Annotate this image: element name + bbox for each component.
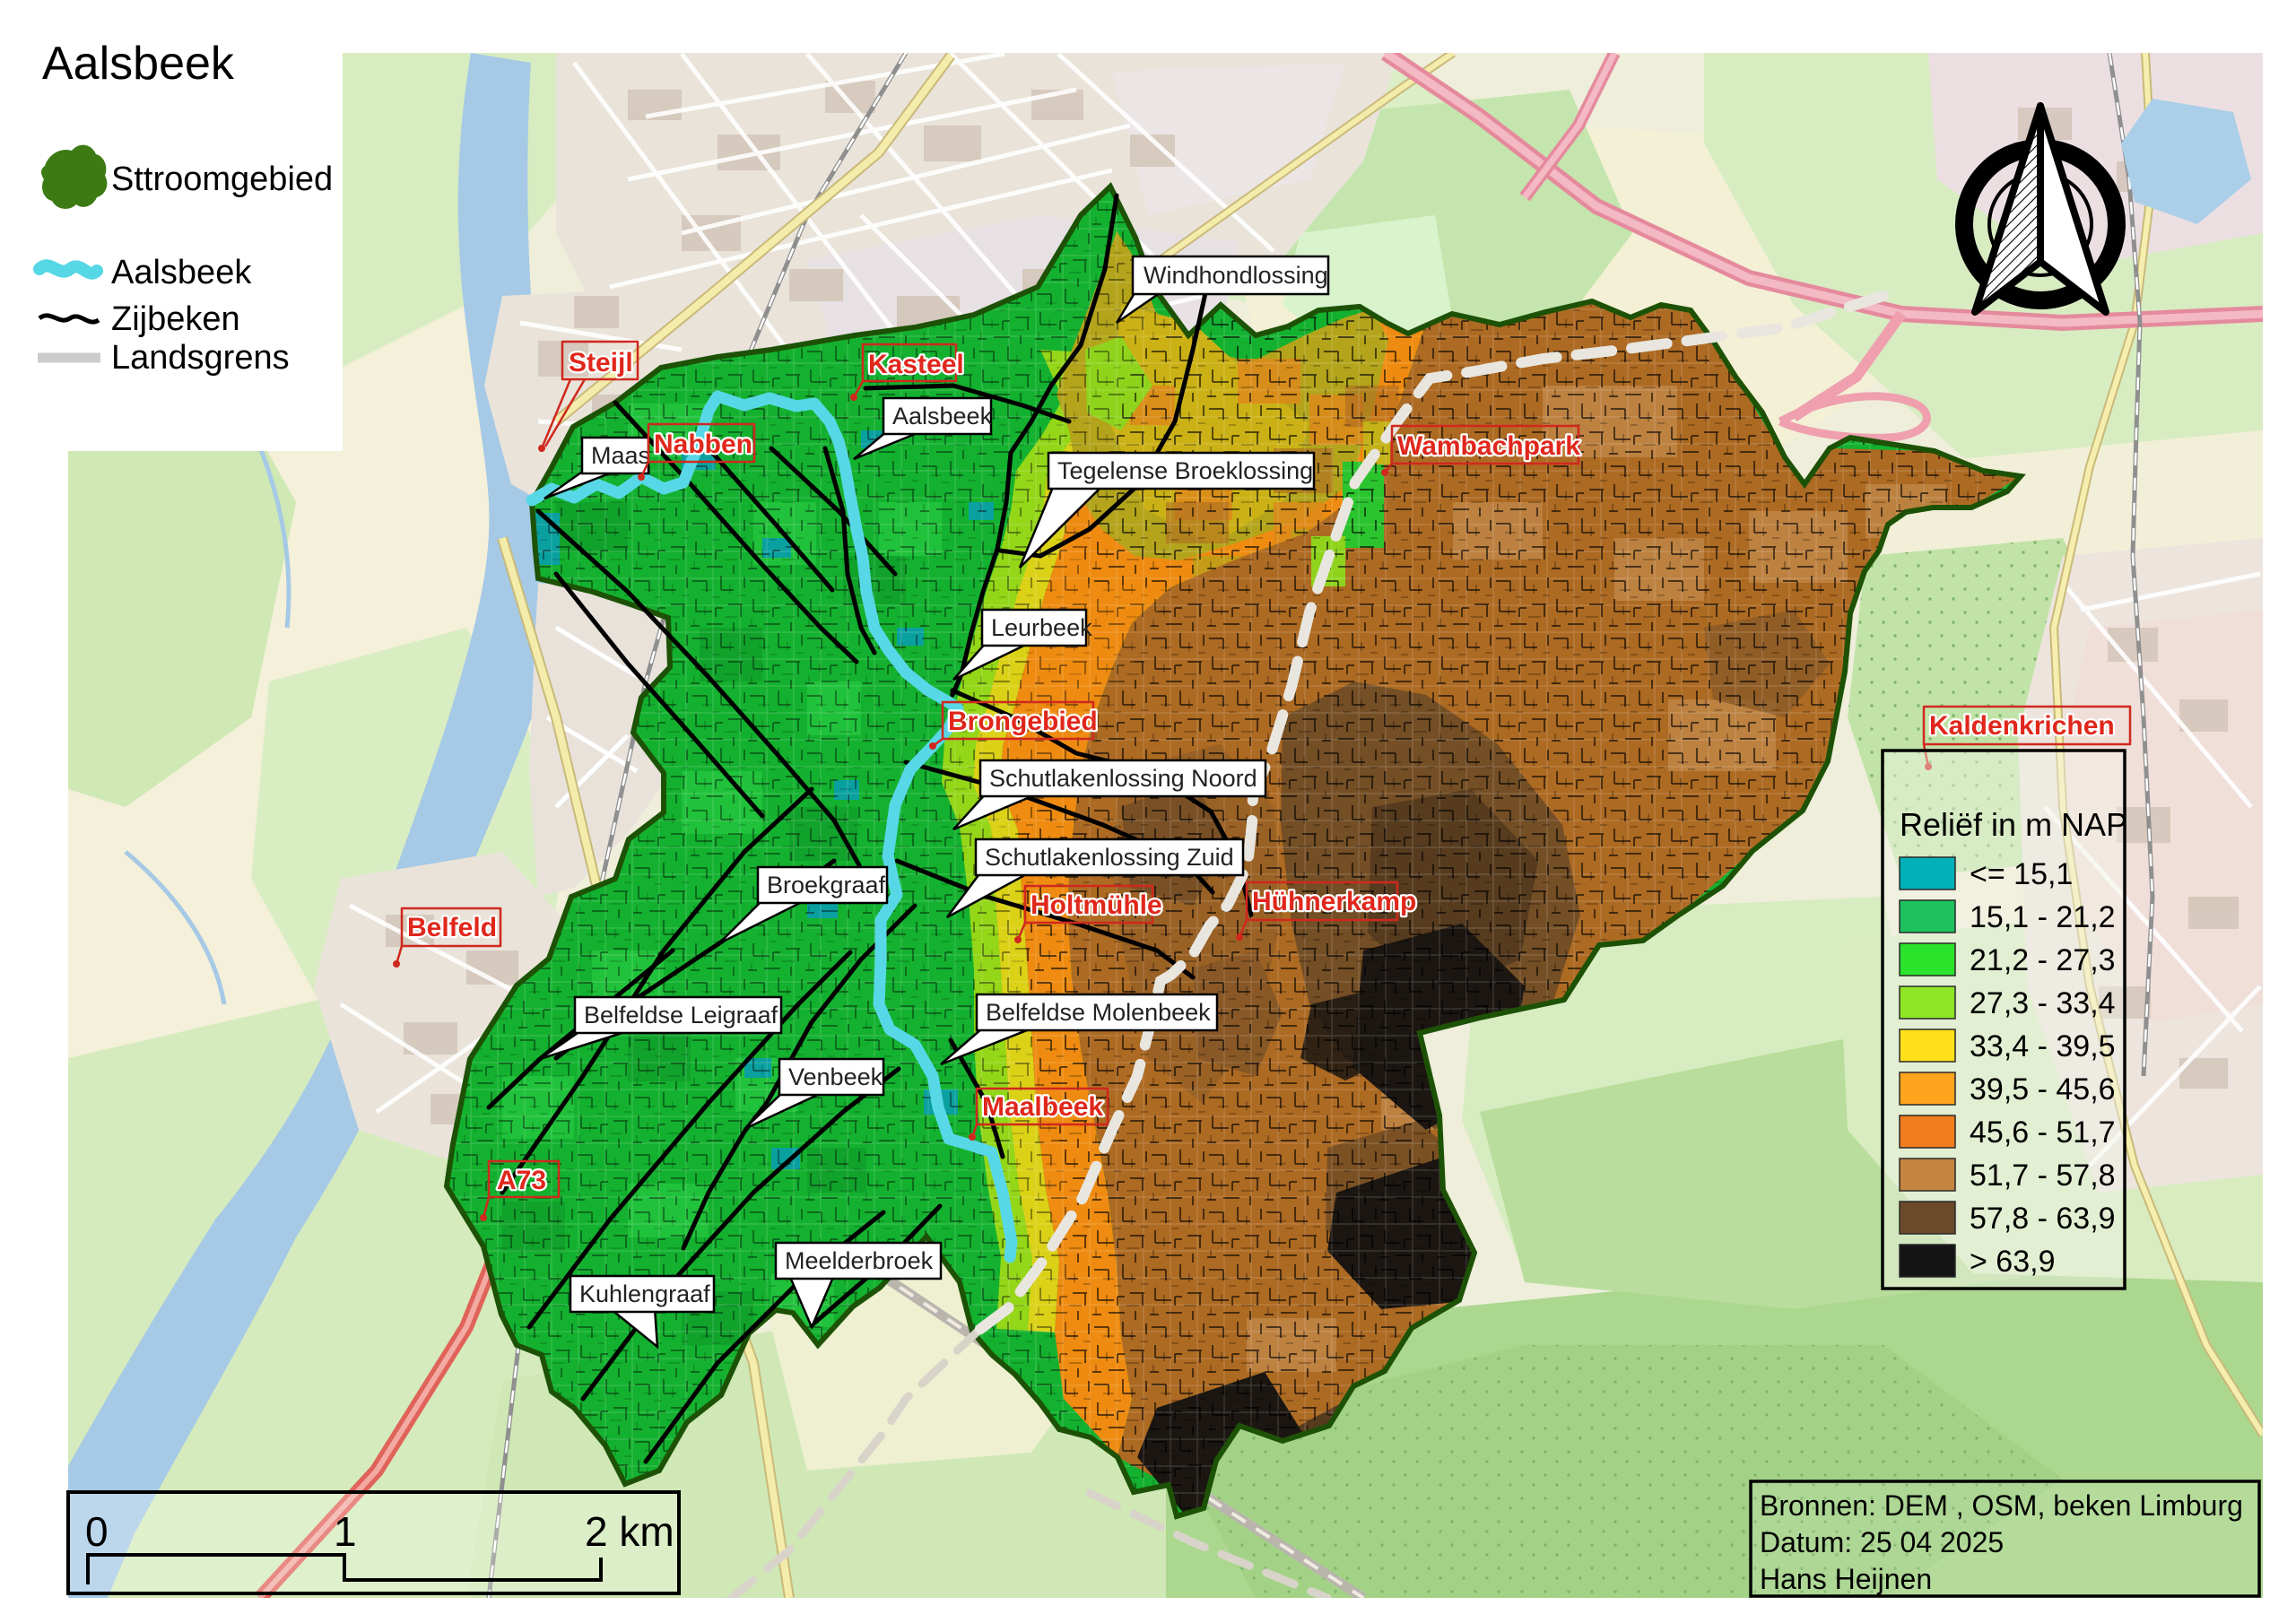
svg-text:Kaldenkrichen: Kaldenkrichen bbox=[1929, 711, 2115, 741]
svg-text:15,1 - 21,2: 15,1 - 21,2 bbox=[1970, 900, 2116, 934]
svg-text:Reliëf in m NAP: Reliëf in m NAP bbox=[1900, 806, 2127, 843]
svg-text:27,3 - 33,4: 27,3 - 33,4 bbox=[1970, 986, 2116, 1020]
svg-text:> 63,9: > 63,9 bbox=[1970, 1245, 2055, 1279]
svg-text:Landsgrens: Landsgrens bbox=[111, 339, 290, 377]
svg-text:51,7 - 57,8: 51,7 - 57,8 bbox=[1970, 1159, 2116, 1193]
svg-text:Meelderbroek: Meelderbroek bbox=[785, 1247, 934, 1274]
svg-text:Broekgraaf: Broekgraaf bbox=[767, 872, 886, 898]
svg-text:Schutlakenlossing Noord: Schutlakenlossing Noord bbox=[989, 765, 1257, 792]
svg-text:1: 1 bbox=[334, 1508, 357, 1555]
svg-text:Wambachpark: Wambachpark bbox=[1397, 431, 1580, 461]
svg-text:Aalsbeek: Aalsbeek bbox=[892, 403, 993, 430]
svg-text:21,2 - 27,3: 21,2 - 27,3 bbox=[1970, 943, 2116, 977]
svg-text:Nabben: Nabben bbox=[654, 430, 752, 459]
svg-text:Hühnerkamp: Hühnerkamp bbox=[1252, 887, 1416, 916]
svg-text:Bronnen: DEM , OSM, beken Limb: Bronnen: DEM , OSM, beken Limburg bbox=[1760, 1489, 2243, 1522]
svg-text:Schutlakenlossing Zuid: Schutlakenlossing Zuid bbox=[985, 844, 1234, 871]
svg-text:57,8 - 63,9: 57,8 - 63,9 bbox=[1970, 1202, 2116, 1236]
svg-text:Venbeek: Venbeek bbox=[788, 1063, 883, 1090]
svg-text:Windhondlossing: Windhondlossing bbox=[1144, 262, 1328, 289]
svg-text:Aalsbeek: Aalsbeek bbox=[111, 254, 252, 291]
svg-text:Tegelense Broeklossing: Tegelense Broeklossing bbox=[1057, 457, 1313, 484]
svg-text:Zijbeken: Zijbeken bbox=[111, 300, 240, 338]
svg-text:Maalbeek: Maalbeek bbox=[982, 1092, 1103, 1122]
svg-text:A73: A73 bbox=[497, 1166, 546, 1195]
svg-text:<= 15,1: <= 15,1 bbox=[1970, 857, 2073, 891]
svg-text:45,6 - 51,7: 45,6 - 51,7 bbox=[1970, 1115, 2116, 1150]
svg-text:Steijl: Steijl bbox=[569, 348, 633, 378]
svg-text:Leurbeek: Leurbeek bbox=[991, 614, 1092, 641]
svg-text:Belfeld: Belfeld bbox=[407, 913, 497, 942]
svg-text:39,5 - 45,6: 39,5 - 45,6 bbox=[1970, 1072, 2116, 1107]
svg-text:Maas: Maas bbox=[591, 442, 650, 469]
svg-text:Brongebied: Brongebied bbox=[948, 707, 1098, 736]
svg-text:Datum: 25 04 2025: Datum: 25 04 2025 bbox=[1760, 1526, 2004, 1558]
svg-text:Hans Heijnen: Hans Heijnen bbox=[1760, 1563, 1932, 1595]
svg-text:Belfeldse Leigraaf: Belfeldse Leigraaf bbox=[584, 1002, 778, 1028]
svg-text:0: 0 bbox=[85, 1508, 109, 1555]
svg-text:Sttroomgebied: Sttroomgebied bbox=[111, 161, 333, 198]
svg-text:Kuhlengraaf: Kuhlengraaf bbox=[579, 1280, 710, 1307]
svg-text:Kasteel: Kasteel bbox=[868, 350, 964, 379]
svg-text:Belfeldse Molenbeek: Belfeldse Molenbeek bbox=[986, 999, 1211, 1026]
svg-text:33,4 - 39,5: 33,4 - 39,5 bbox=[1970, 1029, 2116, 1063]
svg-text:2 km: 2 km bbox=[585, 1508, 674, 1555]
svg-text:Holtmühle: Holtmühle bbox=[1031, 890, 1162, 920]
svg-text:Aalsbeek: Aalsbeek bbox=[42, 38, 235, 90]
